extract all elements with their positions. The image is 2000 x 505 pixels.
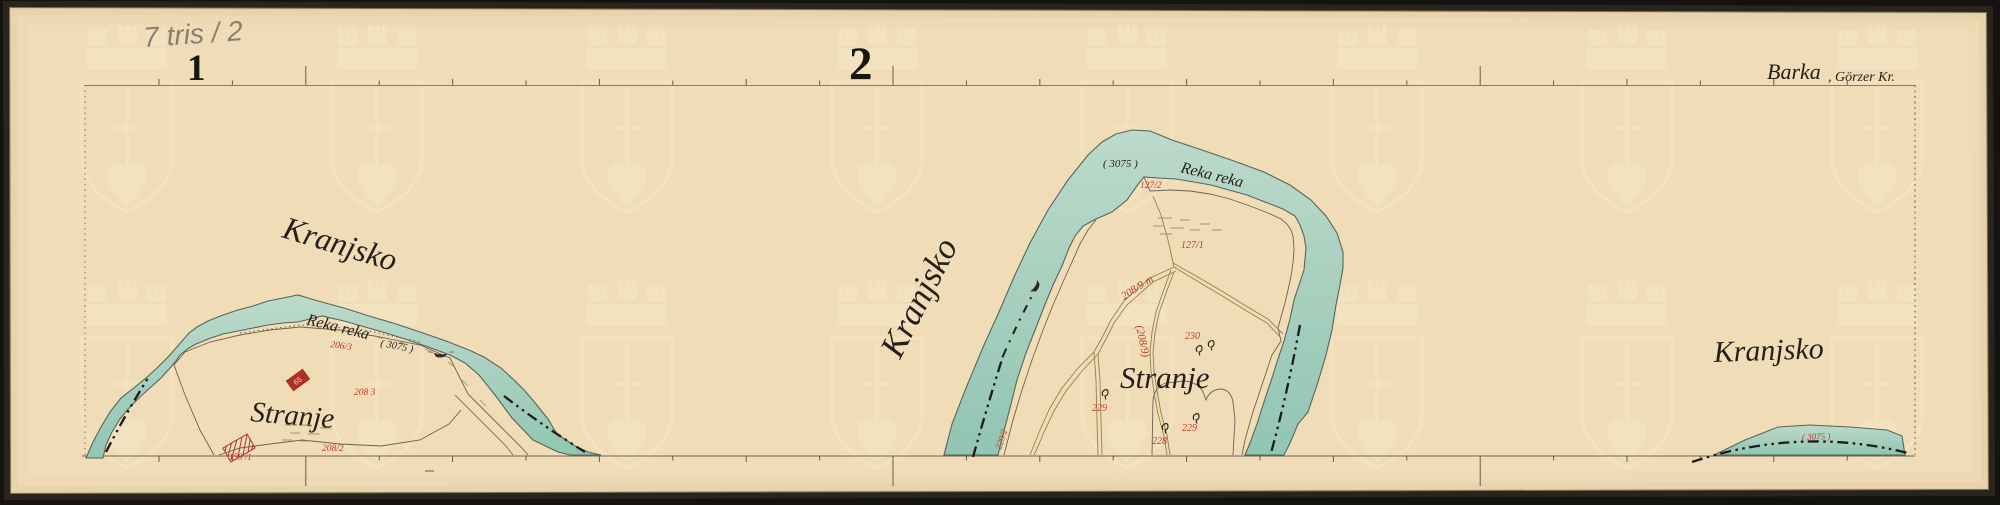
svg-text:229: 229: [1092, 403, 1107, 414]
svg-text:229: 229: [1182, 423, 1197, 434]
svg-text:208/2: 208/2: [322, 444, 344, 454]
svg-text:1: 1: [187, 48, 206, 89]
svg-text:228: 228: [1152, 436, 1167, 447]
svg-text:230: 230: [1185, 331, 1200, 342]
svg-text:127/2: 127/2: [1140, 181, 1162, 191]
svg-text:Kranjsko: Kranjsko: [1712, 332, 1824, 369]
svg-text:Stranje: Stranje: [1120, 360, 1210, 395]
svg-text:208 3: 208 3: [354, 388, 376, 398]
svg-text:( 3075 ): ( 3075 ): [1802, 431, 1831, 442]
svg-text:( 3075 ): ( 3075 ): [1103, 158, 1138, 170]
svg-text:Barka: Barka: [1767, 59, 1821, 84]
svg-text:, Görzer Kr.: , Görzer Kr.: [1828, 70, 1895, 85]
svg-text:127/1: 127/1: [1181, 240, 1204, 251]
svg-text:2: 2: [849, 38, 873, 90]
